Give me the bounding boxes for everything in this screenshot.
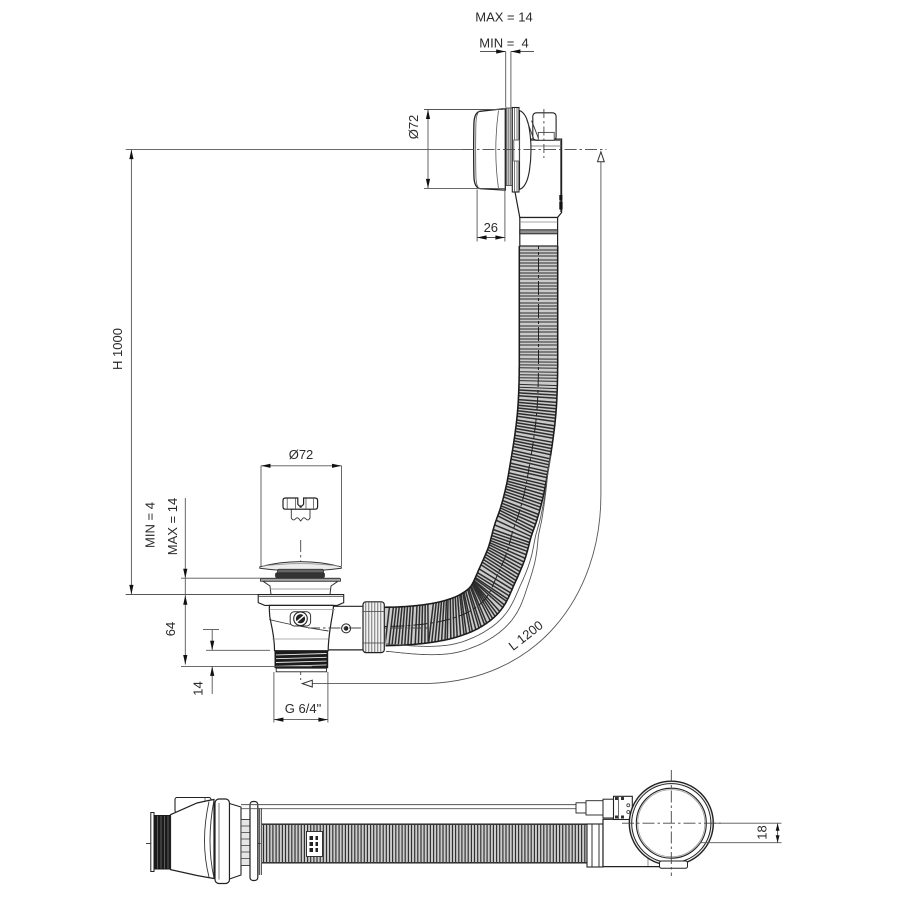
svg-text:MAX = 14: MAX = 14	[475, 10, 532, 25]
svg-text:MIN = 4: MIN = 4	[143, 502, 158, 548]
svg-text:Ø72: Ø72	[289, 447, 314, 462]
svg-text:64: 64	[163, 622, 178, 636]
svg-text:18: 18	[755, 825, 770, 839]
svg-text:14: 14	[191, 681, 206, 695]
svg-text:MIN = 4: MIN = 4	[479, 36, 529, 51]
svg-text:G 6/4": G 6/4"	[285, 701, 322, 716]
svg-text:26: 26	[484, 220, 498, 235]
svg-text:Ø72: Ø72	[406, 115, 421, 140]
svg-text:MAX = 14: MAX = 14	[165, 498, 180, 555]
svg-text:H 1000: H 1000	[110, 328, 125, 370]
